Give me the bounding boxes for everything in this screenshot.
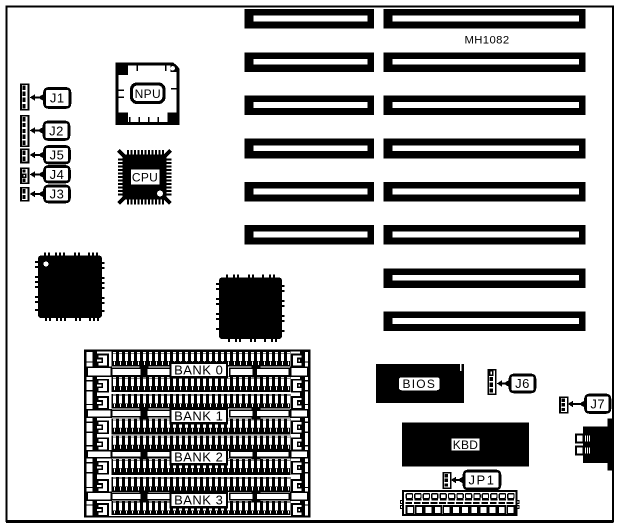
svg-text:KBD: KBD xyxy=(453,438,479,452)
svg-text:CPU: CPU xyxy=(132,171,158,185)
svg-text:BANK 1: BANK 1 xyxy=(174,409,223,424)
svg-text:J5: J5 xyxy=(50,147,65,162)
svg-text:J1: J1 xyxy=(50,91,65,106)
svg-text:BANK 2: BANK 2 xyxy=(174,450,223,465)
svg-text:J3: J3 xyxy=(50,187,65,202)
svg-text:J2: J2 xyxy=(49,123,64,138)
svg-text:J4: J4 xyxy=(50,167,65,182)
svg-text:MH1082: MH1082 xyxy=(464,34,509,46)
svg-text:JP1: JP1 xyxy=(469,473,496,488)
svg-text:BANK 3: BANK 3 xyxy=(174,493,223,508)
svg-text:NPU: NPU xyxy=(135,87,161,101)
svg-text:J6: J6 xyxy=(515,376,530,391)
svg-text:BANK 0: BANK 0 xyxy=(174,363,223,378)
svg-text:BIOS: BIOS xyxy=(403,377,436,391)
svg-text:J7: J7 xyxy=(590,396,605,411)
